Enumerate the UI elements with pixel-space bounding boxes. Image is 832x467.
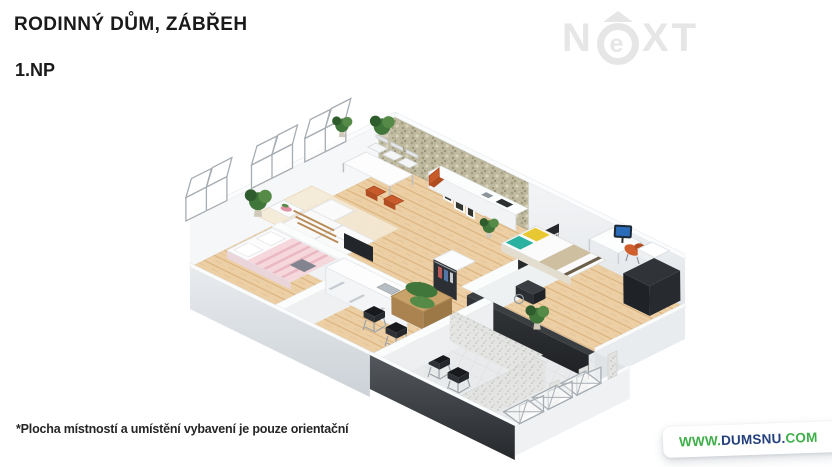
badge-domain: DUMSNU (721, 431, 782, 448)
badge-tld: COM (786, 430, 819, 446)
disclaimer-note: *Plocha místností a umístění vybavení je… (16, 422, 348, 436)
website-badge: WWW.DUMSNU.COM (663, 421, 832, 458)
stone-pier (608, 351, 617, 380)
badge-www: WWW. (679, 433, 722, 449)
floorplan-render (0, 0, 832, 467)
flyer-page: RODINNÝ DŮM, ZÁBŘEH 1.NP N e XT (0, 0, 832, 467)
